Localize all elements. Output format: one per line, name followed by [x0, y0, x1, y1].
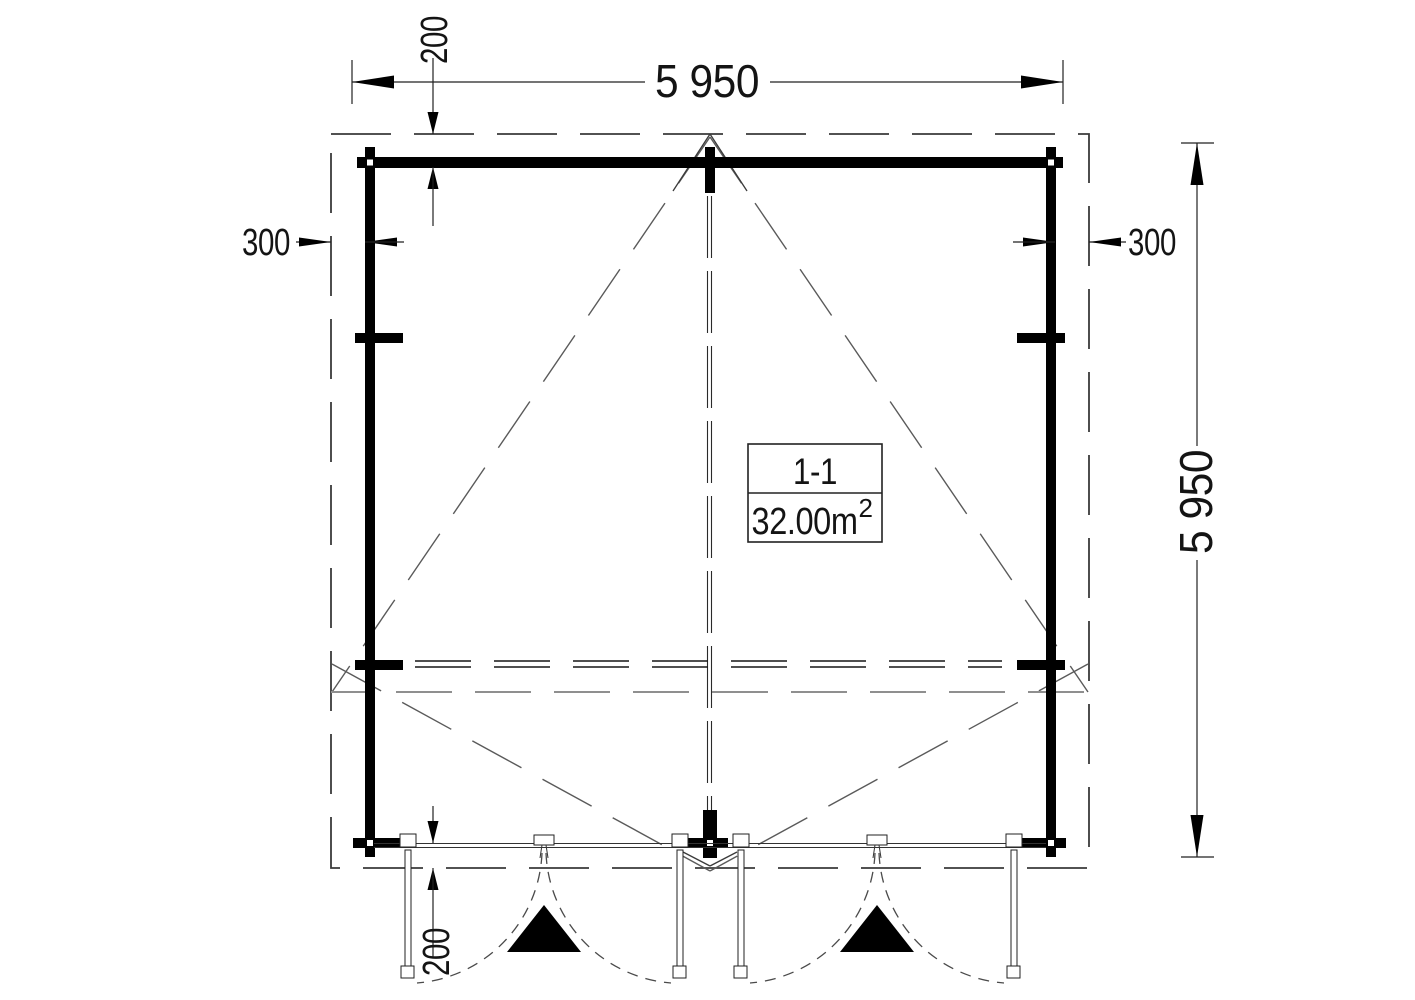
dim-overall-height-label: 5 950 — [1170, 450, 1222, 554]
dim-left-inset — [296, 238, 404, 247]
corner-joint-notches — [367, 160, 1054, 847]
corner-notch-top-right — [1048, 160, 1054, 166]
log-end-tick-left-lower — [355, 660, 403, 670]
dim-right-inset — [1013, 238, 1126, 247]
door1-leaf-left-foot — [401, 966, 414, 978]
ridge-line — [708, 196, 712, 840]
roof-diagonal-apex-to-right — [710, 137, 1088, 692]
dim-top-overhang-label: 200 — [414, 16, 456, 64]
door2-swing-arc-left — [750, 853, 875, 983]
roof-diagonals — [332, 137, 1088, 871]
door2-leaf-left — [738, 850, 744, 968]
door1-swing-arc-right — [546, 853, 671, 983]
door2-hinge-jamb-left — [733, 834, 749, 847]
floor-plan-page: 5 950 200 300 300 5 950 200 — [0, 0, 1415, 1000]
dim-top-overhang-arrow-down — [428, 112, 439, 134]
roof-diagonal-apex-to-left — [332, 137, 710, 692]
roof-overhang-outline — [331, 134, 1089, 868]
dim-width-arrow-left — [352, 76, 394, 89]
door1-leaf-left — [405, 850, 411, 968]
dim-top-overhang — [428, 58, 439, 226]
dim-left-inset-arrow-right — [299, 238, 331, 247]
log-end-tick-right-upper — [1017, 333, 1065, 343]
corner-notch-bottom-left — [367, 840, 373, 846]
room-area-label: 32.00m2 — [752, 493, 873, 543]
dim-right-inset-label: 300 — [1128, 222, 1176, 264]
door1-hinge-jamb-left — [400, 834, 416, 847]
wall-right — [1046, 147, 1056, 857]
center-door-post — [703, 810, 717, 858]
dim-bottom-overhang-arrow-down — [428, 821, 439, 843]
door2-leaf-right — [1011, 850, 1017, 968]
corner-notch-top-left — [367, 160, 373, 166]
dim-width-arrow-right — [1021, 76, 1063, 89]
door2-direction-triangle — [840, 905, 914, 952]
door1-hinge-jamb-right — [672, 834, 688, 847]
log-end-tick-right-lower — [1017, 660, 1065, 670]
door1-meeting-stile — [534, 835, 554, 845]
dim-bottom-overhang-label: 200 — [416, 928, 458, 976]
corner-notch-bottom-right — [1048, 840, 1054, 846]
room-label-box: 1-1 32.00m2 — [748, 444, 882, 543]
ridge-post-top — [705, 147, 715, 193]
door1-leaf-right-foot — [673, 966, 686, 978]
room-area-exponent: 2 — [859, 493, 873, 523]
floor-plan-drawing: 5 950 200 300 300 5 950 200 — [0, 0, 1415, 1000]
room-number-label: 1-1 — [793, 451, 837, 492]
door1-leaf-right — [677, 850, 683, 968]
log-end-tick-left-upper — [355, 333, 403, 343]
room-area-value: 32.00m — [752, 501, 858, 543]
dim-height-arrow-down — [1191, 815, 1204, 857]
door2-meeting-stile — [867, 835, 887, 845]
dim-height-arrow-up — [1191, 143, 1204, 185]
dim-right-inset-arrow-left — [1089, 238, 1121, 247]
door2-leaf-right-foot — [1007, 966, 1020, 978]
door2-leaf-left-foot — [734, 966, 747, 978]
wall-left — [365, 147, 375, 857]
dim-overall-width-label: 5 950 — [655, 55, 759, 107]
door-2 — [733, 834, 1022, 983]
roof-apex-marks — [673, 134, 747, 866]
door2-hinge-jamb-right — [1006, 834, 1022, 847]
door1-direction-triangle — [507, 905, 581, 952]
door2-swing-arc-right — [879, 853, 1004, 983]
dim-left-inset-label: 300 — [242, 222, 290, 264]
roof-beam-double-line — [415, 661, 1002, 667]
roof-outline-rect — [331, 134, 1089, 868]
